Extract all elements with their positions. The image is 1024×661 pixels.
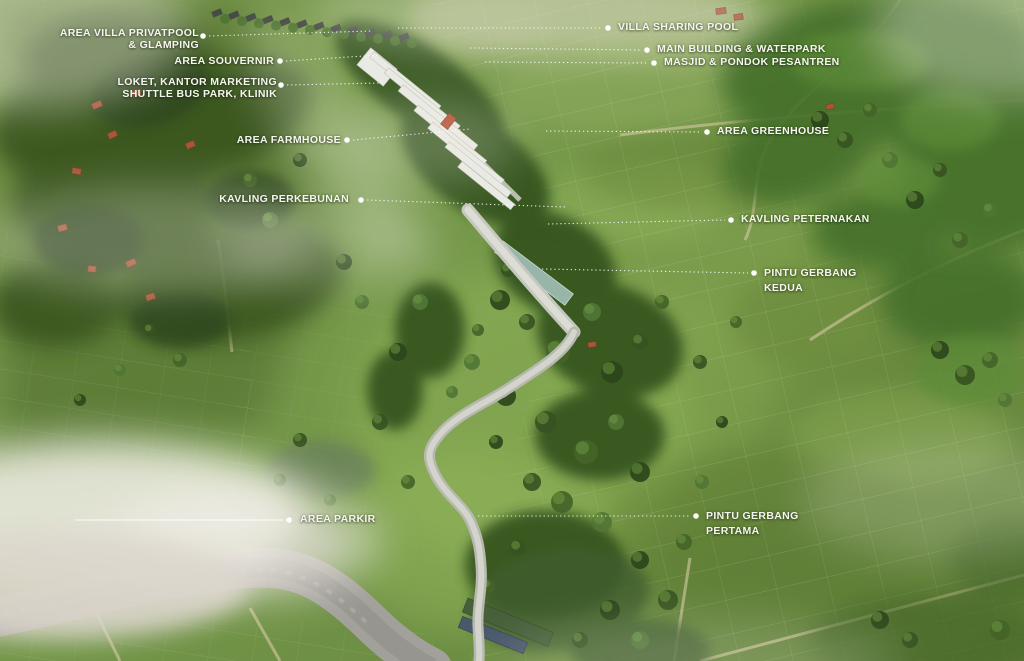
label-dot-area-villa-privatpool-glamping (200, 33, 206, 39)
leader-line-kavling-peternakan (548, 220, 725, 224)
label-dot-area-greenhouse (704, 129, 710, 135)
leader-line-pintu-gerbang-kedua (542, 269, 748, 273)
label-dot-area-farmhouse (344, 137, 350, 143)
leader-line-area-farmhouse (353, 129, 470, 140)
leader-line-area-greenhouse (546, 131, 701, 132)
label-dot-kavling-perkebunan (358, 197, 364, 203)
leader-line-loket-kantor-marketing (287, 83, 380, 85)
label-dot-masjid-pondok-pesantren (651, 60, 657, 66)
label-dot-kavling-peternakan (728, 217, 734, 223)
leader-line-masjid-pondok-pesantren (485, 62, 648, 63)
label-dot-pintu-gerbang-pertama (693, 513, 699, 519)
leader-line-main-building-waterpark (470, 48, 641, 50)
leader-line-area-villa-privatpool-glamping (209, 31, 372, 36)
label-dot-area-souvernir (277, 58, 283, 64)
label-dot-villa-sharing-pool (605, 25, 611, 31)
leader-line-kavling-perkebunan (367, 200, 565, 207)
annotation-overlay (0, 0, 1024, 661)
label-dot-area-parkir (286, 517, 292, 523)
label-dot-main-building-waterpark (644, 47, 650, 53)
leader-line-area-souvernir (286, 55, 380, 61)
masterplan-canvas: AREA VILLA PRIVATPOOL& GLAMPINGAREA SOUV… (0, 0, 1024, 661)
label-dot-pintu-gerbang-kedua (751, 270, 757, 276)
label-dot-loket-kantor-marketing (278, 82, 284, 88)
